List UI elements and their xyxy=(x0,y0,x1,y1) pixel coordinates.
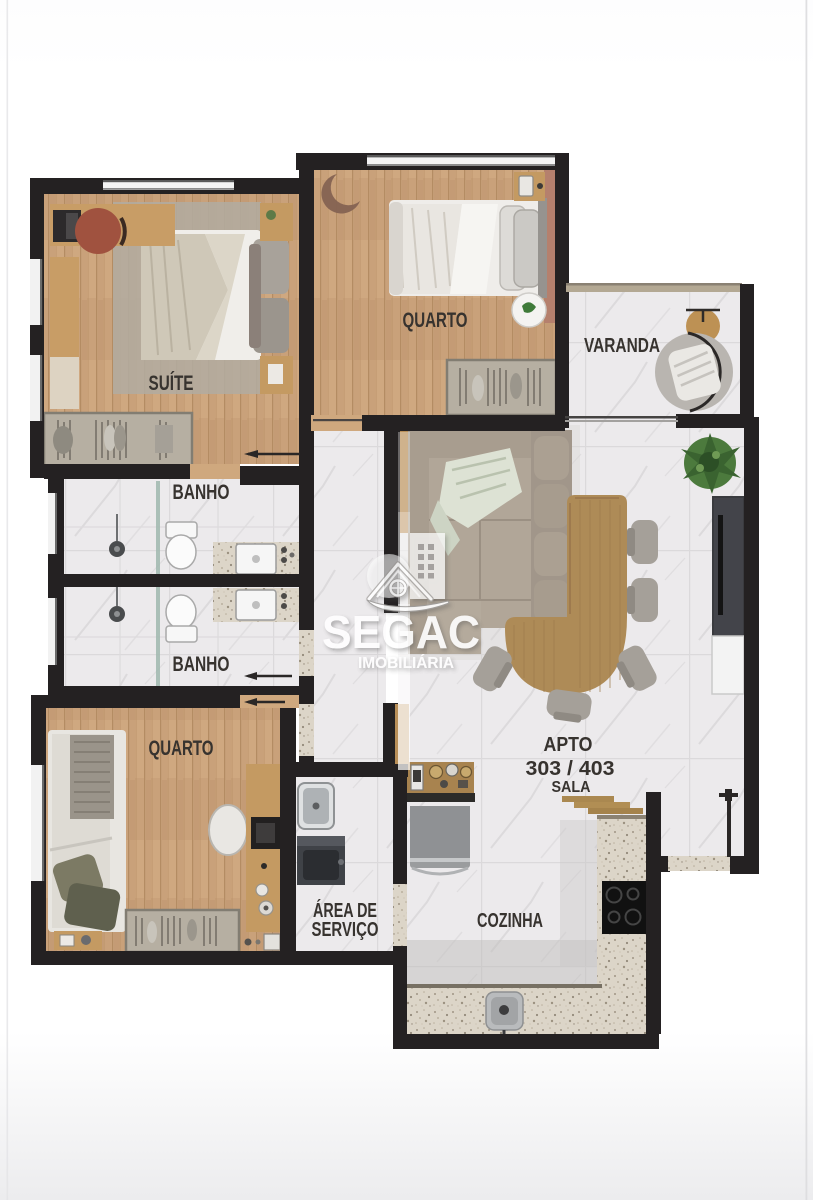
svg-text:SERVIÇO: SERVIÇO xyxy=(312,919,379,941)
svg-text:COZINHA: COZINHA xyxy=(477,910,543,932)
svg-text:SUÍTE: SUÍTE xyxy=(149,372,194,395)
svg-text:SALA: SALA xyxy=(552,779,591,796)
svg-text:VARANDA: VARANDA xyxy=(584,335,660,357)
svg-text:APTO: APTO xyxy=(544,734,593,756)
svg-text:BANHO: BANHO xyxy=(173,653,230,676)
svg-text:BANHO: BANHO xyxy=(173,481,230,504)
svg-text:QUARTO: QUARTO xyxy=(403,309,468,332)
svg-text:IMOBILIÁRIA: IMOBILIÁRIA xyxy=(358,653,454,672)
svg-text:QUARTO: QUARTO xyxy=(149,737,214,760)
svg-text:SEGAC: SEGAC xyxy=(322,606,480,658)
svg-text:303 / 403: 303 / 403 xyxy=(526,758,615,780)
